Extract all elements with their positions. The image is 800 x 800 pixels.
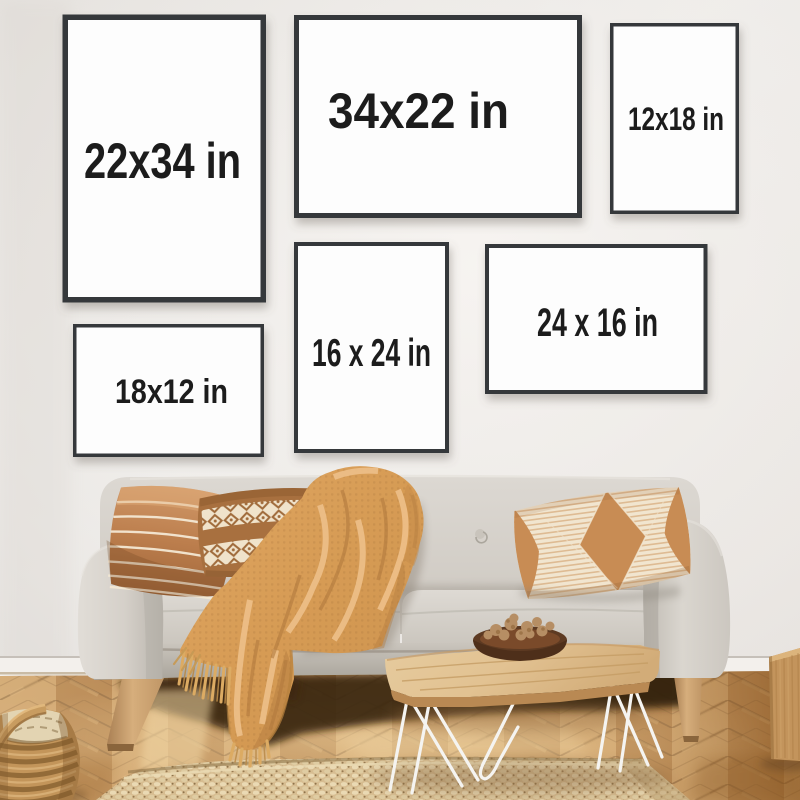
- svg-text:18x12 in: 18x12 in: [115, 373, 228, 411]
- svg-text:34x22 in: 34x22 in: [328, 83, 509, 139]
- svg-text:12x18 in: 12x18 in: [628, 101, 724, 137]
- svg-text:16 x 24 in: 16 x 24 in: [312, 332, 431, 375]
- svg-text:22x34 in: 22x34 in: [84, 133, 241, 189]
- svg-text:24 x 16 in: 24 x 16 in: [537, 301, 658, 345]
